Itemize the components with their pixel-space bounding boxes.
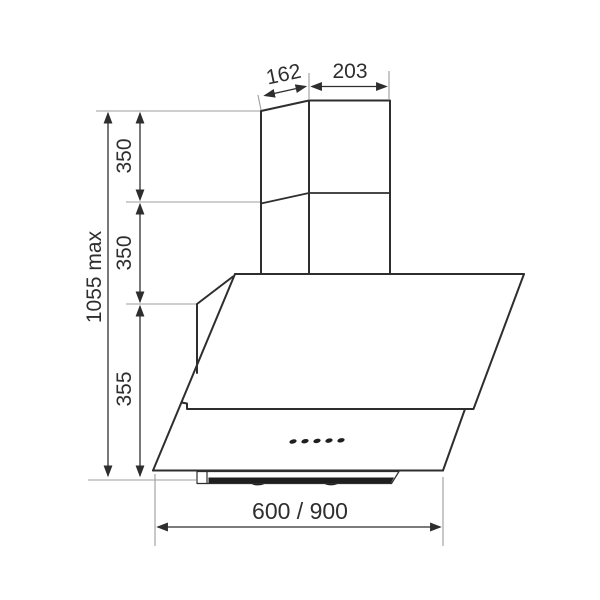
chimney-side-seam (261, 193, 309, 204)
label-hood-width: 600 / 900 (252, 498, 348, 524)
control-button-dot (337, 437, 345, 443)
ext-chimney-depth-tick (258, 95, 261, 110)
range-hood-dimension-drawing: 1055 max 350 350 355 162 203 600 / 900 (0, 0, 600, 600)
base-strip (197, 472, 399, 486)
label-body-height: 355 (113, 371, 136, 406)
glass-panel-edge (182, 274, 525, 409)
label-chimney-upper-height: 350 (113, 138, 136, 173)
control-button-dot (325, 438, 333, 444)
control-button-dot (289, 439, 297, 445)
chimney-side-face (261, 101, 309, 275)
label-chimney-depth: 162 (264, 60, 303, 90)
base-strip-dark-band (209, 478, 395, 484)
hood-outline (153, 101, 524, 471)
chimney-front-face (309, 101, 390, 275)
control-button-dot (301, 438, 309, 444)
label-chimney-width: 203 (332, 60, 367, 83)
control-band-right-edge (443, 409, 465, 471)
dimension-labels: 1055 max 350 350 355 162 203 600 / 900 (83, 60, 368, 524)
control-button-dot (313, 438, 321, 444)
label-total-height: 1055 max (83, 230, 106, 323)
label-chimney-lower-height: 350 (113, 235, 136, 270)
control-buttons (289, 437, 345, 444)
